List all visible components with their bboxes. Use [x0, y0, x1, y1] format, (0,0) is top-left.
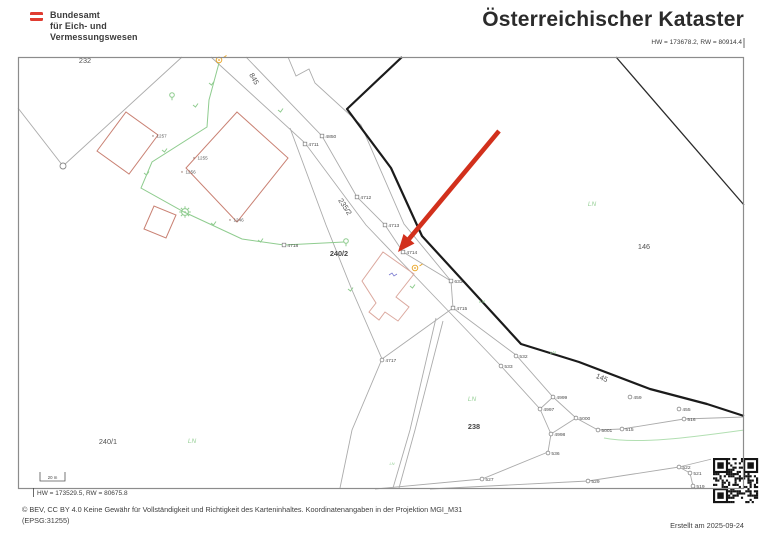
scale-bar: 20 m — [40, 472, 65, 481]
survey-point-marker — [451, 306, 455, 310]
survey-point-marker — [551, 395, 555, 399]
survey-point-marker — [538, 407, 542, 411]
survey-point-marker — [620, 427, 624, 431]
coordinate-bottom-left: HW = 173529.5, RW = 80675.8 — [37, 490, 128, 497]
parcel-label: 235/2 — [336, 197, 353, 217]
landuse-label: LN — [479, 299, 486, 304]
survey-point-label: 4711 — [308, 142, 319, 148]
survey-point-label: 516 — [687, 417, 695, 423]
survey-point-label: 5001 — [601, 428, 612, 434]
green-ticks — [144, 82, 415, 292]
building-point-marker: × — [152, 134, 155, 139]
map-frame — [19, 58, 744, 489]
survey-point-marker — [499, 364, 503, 368]
parcel-line — [375, 452, 548, 489]
survey-point-label: 455 — [682, 407, 690, 413]
survey-point-label: 522 — [682, 465, 690, 471]
survey-point-marker — [449, 279, 453, 283]
survey-point-marker — [677, 407, 681, 411]
building-outline — [97, 112, 158, 174]
landuse-label: LN — [188, 438, 197, 445]
copyright-line: © BEV, CC BY 4.0 Keine Gewähr für Vollst… — [22, 505, 662, 516]
boundary-line-thick — [347, 57, 744, 416]
kataster-page: { "header": { "logo_lines": ["Bundesamt"… — [0, 0, 770, 545]
parcel-label: 240/2 — [330, 249, 348, 258]
survey-point-marker — [383, 223, 387, 227]
survey-point-marker — [355, 195, 359, 199]
buildings — [97, 112, 414, 321]
orange-symbol — [216, 56, 226, 63]
building-point-marker: × — [229, 218, 232, 223]
survey-point-label: 4718 — [287, 243, 298, 249]
blue-symbol — [389, 273, 397, 276]
parcel-line — [430, 467, 696, 489]
building-point-label: 1255 — [198, 156, 209, 161]
survey-point-label: 532 — [519, 354, 527, 360]
created-date: Erstellt am 2025-09-24 — [670, 521, 744, 530]
landuse-label: LN — [389, 461, 394, 466]
parcel-lines — [18, 57, 744, 489]
qr-code — [711, 456, 760, 505]
survey-point-marker — [691, 484, 695, 488]
survey-point-marker — [574, 416, 578, 420]
cadastral-map: 4850471147124713471447186334715471753253… — [0, 0, 770, 545]
building-point-label: 1246 — [234, 218, 245, 223]
parcel-line — [382, 308, 453, 359]
survey-point-label: 459 — [633, 395, 641, 401]
survey-point-label: 4717 — [385, 358, 396, 364]
parcel-label: 146 — [638, 242, 650, 251]
survey-point-marker — [628, 395, 632, 399]
parcel-line — [393, 318, 436, 488]
survey-point-label: 4998 — [554, 432, 565, 438]
boundary-line-thin — [616, 57, 744, 205]
vegetation-lines — [141, 63, 744, 441]
survey-point-marker — [303, 142, 307, 146]
survey-point-label: 536 — [551, 451, 559, 457]
survey-point-label: 5000 — [579, 416, 590, 422]
parcel-label: 240/1 — [99, 437, 117, 446]
survey-point-label: 527 — [485, 477, 493, 483]
survey-point-label: 4713 — [388, 223, 399, 229]
parcel-label: 238 — [468, 422, 480, 431]
survey-point-marker — [596, 428, 600, 432]
parcel-line — [63, 57, 182, 166]
survey-point-marker — [546, 451, 550, 455]
red-arrow — [398, 131, 499, 252]
survey-point-marker — [586, 479, 590, 483]
survey-point-marker — [514, 354, 518, 358]
survey-point-marker — [682, 417, 686, 421]
building-point-marker: × — [193, 156, 196, 161]
survey-point-label: 4850 — [325, 134, 336, 140]
survey-point-marker — [320, 134, 324, 138]
landuse-label: LN — [588, 201, 597, 208]
parcel-line — [340, 359, 382, 488]
survey-point-label: 515 — [625, 427, 633, 433]
building-outline — [144, 206, 176, 238]
survey-point-marker — [688, 471, 692, 475]
copyright-line: (EPSG:31255) — [22, 516, 662, 527]
survey-point-label: 533 — [504, 364, 512, 370]
survey-point-marker — [282, 243, 286, 247]
survey-point-label: 4999 — [556, 395, 567, 401]
tree-symbol — [170, 93, 349, 247]
survey-point-marker — [480, 477, 484, 481]
survey-point-label: 633 — [454, 279, 462, 285]
building-point-marker: × — [181, 170, 184, 175]
building-outline — [362, 252, 414, 321]
parcel-line — [290, 128, 382, 359]
survey-point-marker — [549, 432, 553, 436]
survey-point-marker — [677, 465, 681, 469]
copyright-note: © BEV, CC BY 4.0 Keine Gewähr für Vollst… — [22, 505, 662, 526]
parcel-line — [288, 57, 451, 281]
landuse-label: LN — [468, 396, 477, 403]
survey-point-label: 4997 — [543, 407, 554, 413]
scale-bar-label: 20 m — [48, 475, 58, 480]
survey-point-label: 4714 — [406, 250, 417, 256]
building-point-label: 1257 — [157, 134, 168, 139]
parcel-line — [551, 418, 576, 434]
building-outline — [186, 112, 288, 222]
building-point-label: 1256 — [186, 170, 197, 175]
flower-symbol — [179, 206, 191, 218]
survey-point-label: 4712 — [360, 195, 371, 201]
survey-point-marker — [401, 250, 405, 254]
boundary-stone-symbol — [60, 163, 66, 169]
survey-point-label: 4715 — [456, 306, 467, 312]
survey-point-label: 529 — [591, 479, 599, 485]
parcel-line — [399, 321, 443, 488]
parcel-label: 845 — [247, 71, 261, 86]
orange-symbol — [412, 264, 422, 271]
parcel-line — [18, 108, 63, 166]
landuse-label: LN — [550, 350, 557, 355]
survey-point-marker — [380, 358, 384, 362]
survey-point-label: 521 — [693, 471, 701, 477]
